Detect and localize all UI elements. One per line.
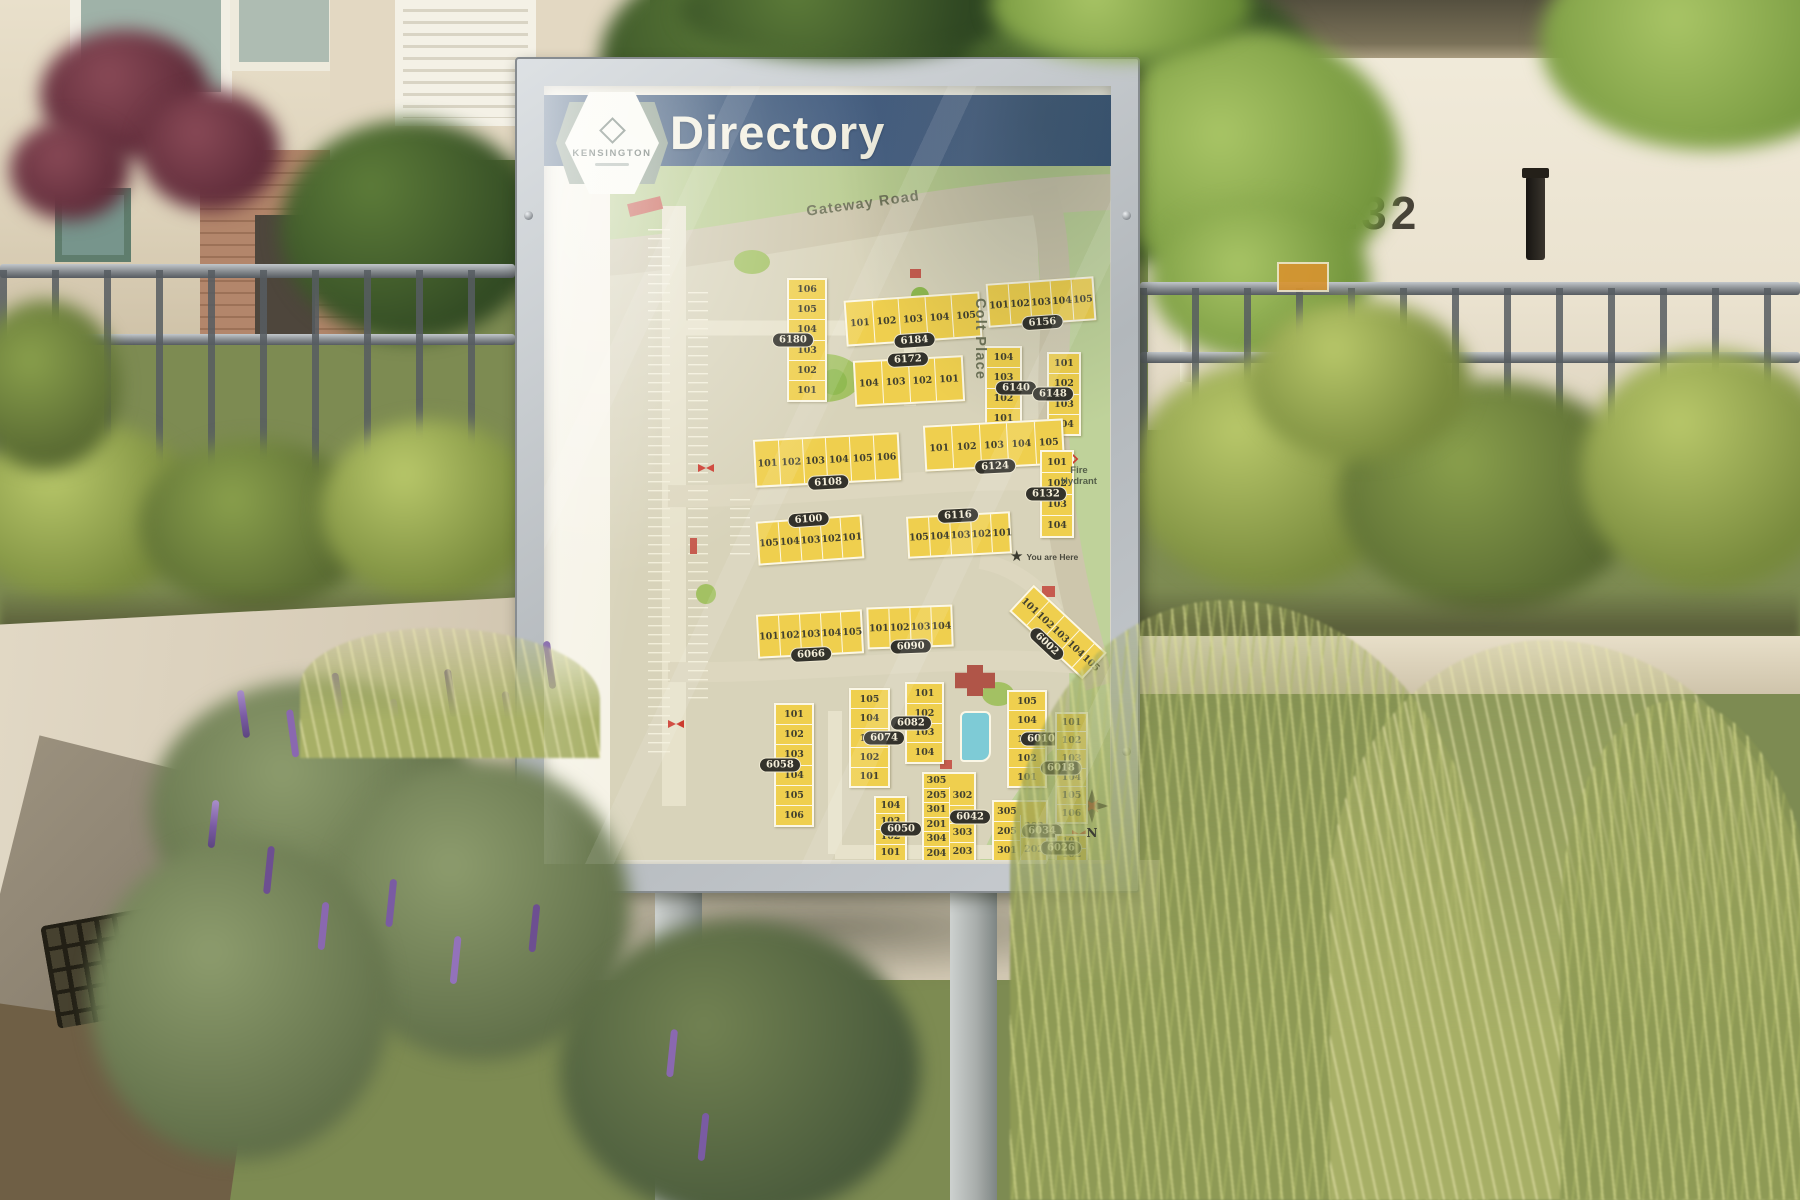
street-photo: 6132 xyxy=(0,0,1800,1200)
building-6116: 1051041031021016116 xyxy=(906,511,1012,558)
unit-101: 101 xyxy=(1049,354,1079,373)
building-6090: 1011021031046090 xyxy=(866,605,953,650)
unit-101: 101 xyxy=(876,844,905,860)
unit-101: 101 xyxy=(776,705,812,724)
unit-304: 304 xyxy=(924,831,949,846)
unit-305: 305 xyxy=(924,774,949,788)
unit-105: 105 xyxy=(1009,692,1045,710)
unit-101: 101 xyxy=(907,684,942,703)
compass-north-label: N xyxy=(1072,826,1110,840)
unit-104: 104 xyxy=(851,708,888,727)
building-label-6172: 6172 xyxy=(887,351,930,368)
building-6172: 1041031021016172 xyxy=(853,355,965,407)
fire-hydrant-icon xyxy=(1073,454,1085,464)
plum-foliage xyxy=(10,120,130,220)
unit-102: 102 xyxy=(851,747,888,766)
unit-101: 101 xyxy=(789,380,825,400)
sign-leg-right xyxy=(950,880,997,1200)
building-6156: 1011021031041056156 xyxy=(986,276,1097,327)
building-label-6042: 6042 xyxy=(949,810,991,825)
building-6066: 1011021031041056066 xyxy=(756,609,864,658)
building-label-6140: 6140 xyxy=(995,381,1037,396)
building-label-6124: 6124 xyxy=(974,458,1017,475)
building-6100: 1051041031021016100 xyxy=(756,514,865,565)
unit-201: 201 xyxy=(924,817,949,832)
unit-101: 101 xyxy=(990,513,1013,552)
building-6074: 1051041031021016074 xyxy=(849,688,890,788)
fire-hydrant-label: Fire Hydrant xyxy=(1053,466,1105,487)
ornamental-grass xyxy=(1560,700,1800,1200)
fire-hydrant-legend: Fire Hydrant xyxy=(1053,454,1105,487)
unit-101: 101 xyxy=(934,357,963,400)
unit-102: 102 xyxy=(789,360,825,380)
directory-poster: Directory KENSINGTON xyxy=(544,86,1111,864)
building-6140: 1041031021016140 xyxy=(985,346,1022,430)
unit-104: 104 xyxy=(1009,710,1045,729)
building-6050: 1041031021016050 xyxy=(874,796,907,860)
hedge-mound xyxy=(320,420,540,600)
unit-105: 105 xyxy=(776,785,812,805)
building-6042: 3052053012013042043022023032036042 xyxy=(922,772,976,860)
directory-title: Directory xyxy=(670,105,885,160)
fence-notice-tag xyxy=(1277,262,1329,292)
unit-301: 301 xyxy=(924,802,949,817)
you-are-here-label: You are Here xyxy=(1026,552,1078,562)
unit-105: 105 xyxy=(908,518,930,557)
unit-102: 102 xyxy=(778,439,804,484)
unit-105: 105 xyxy=(758,522,781,563)
unit-101: 101 xyxy=(755,441,780,486)
unit-104: 104 xyxy=(876,798,905,813)
unit-106: 106 xyxy=(776,805,812,825)
building-6180: 1061051041031021016180 xyxy=(787,278,827,402)
building-label-6132: 6132 xyxy=(1025,487,1067,502)
unit-106: 106 xyxy=(873,434,899,479)
building-label-6156: 6156 xyxy=(1021,314,1064,332)
building-label-6090: 6090 xyxy=(890,638,932,654)
unit-303: 303 xyxy=(950,823,975,842)
kensington-logo-badge: KENSINGTON xyxy=(556,88,668,198)
unit-101: 101 xyxy=(851,767,888,786)
sage-foliage xyxy=(90,840,390,1160)
unit-101: 101 xyxy=(925,426,954,469)
building-label-6058: 6058 xyxy=(759,758,801,773)
unit-105: 105 xyxy=(851,690,888,708)
unit-104: 104 xyxy=(930,607,952,646)
building-6184: 1011021031041056184 xyxy=(844,291,983,346)
diamond-logo-icon xyxy=(599,117,626,144)
unit-101: 101 xyxy=(840,516,864,557)
building-label-6148: 6148 xyxy=(1032,387,1074,402)
unit-204: 204 xyxy=(924,846,949,861)
unit-102: 102 xyxy=(776,724,812,744)
building-label-6108: 6108 xyxy=(807,474,850,491)
wall-lamp xyxy=(1526,176,1545,260)
building-label-6116: 6116 xyxy=(937,507,980,524)
unit-101: 101 xyxy=(868,609,889,648)
unit-205: 205 xyxy=(924,788,949,803)
compass-rose: N xyxy=(1072,788,1110,844)
unit-104: 104 xyxy=(987,348,1020,367)
unit-104: 104 xyxy=(855,361,883,404)
building-label-6184: 6184 xyxy=(893,332,936,350)
unit-302: 302 xyxy=(950,787,975,805)
swimming-pool xyxy=(960,711,991,762)
frame-screw xyxy=(524,211,533,220)
building-label-6074: 6074 xyxy=(863,731,905,746)
brand-name: KENSINGTON xyxy=(572,148,651,159)
unit-106: 106 xyxy=(789,280,825,299)
unit-101: 101 xyxy=(846,301,874,345)
unit-104: 104 xyxy=(907,742,942,762)
unit-203: 203 xyxy=(950,842,975,861)
building-label-6066: 6066 xyxy=(790,646,833,663)
building-6082: 1011021031046082 xyxy=(905,682,944,764)
plum-foliage xyxy=(140,90,280,210)
you-are-here-marker: ★ You are Here xyxy=(1010,550,1078,564)
unit-105: 105 xyxy=(789,299,825,319)
unit-105: 105 xyxy=(1071,278,1095,319)
building-label-6100: 6100 xyxy=(787,511,830,529)
unit-105: 105 xyxy=(849,436,875,481)
building-label-6050: 6050 xyxy=(880,822,922,837)
unit-101: 101 xyxy=(758,616,780,657)
hedge-top xyxy=(1250,300,1470,460)
building-6108: 1011021031041051066108 xyxy=(753,432,901,488)
building-label-6082: 6082 xyxy=(890,716,932,731)
unit-105: 105 xyxy=(840,611,863,652)
street-label-colt-place: Colt Place xyxy=(972,298,988,378)
building-label-6180: 6180 xyxy=(772,333,814,348)
brand-subline xyxy=(595,163,629,166)
left-building-window-2 xyxy=(230,0,338,71)
star-icon: ★ xyxy=(1010,550,1023,564)
unit-104: 104 xyxy=(1042,515,1072,536)
green-plant xyxy=(560,920,920,1200)
unit-101: 101 xyxy=(988,284,1011,325)
building-6058: 1011021031041051066058 xyxy=(774,703,814,827)
frame-screw xyxy=(1122,211,1131,220)
